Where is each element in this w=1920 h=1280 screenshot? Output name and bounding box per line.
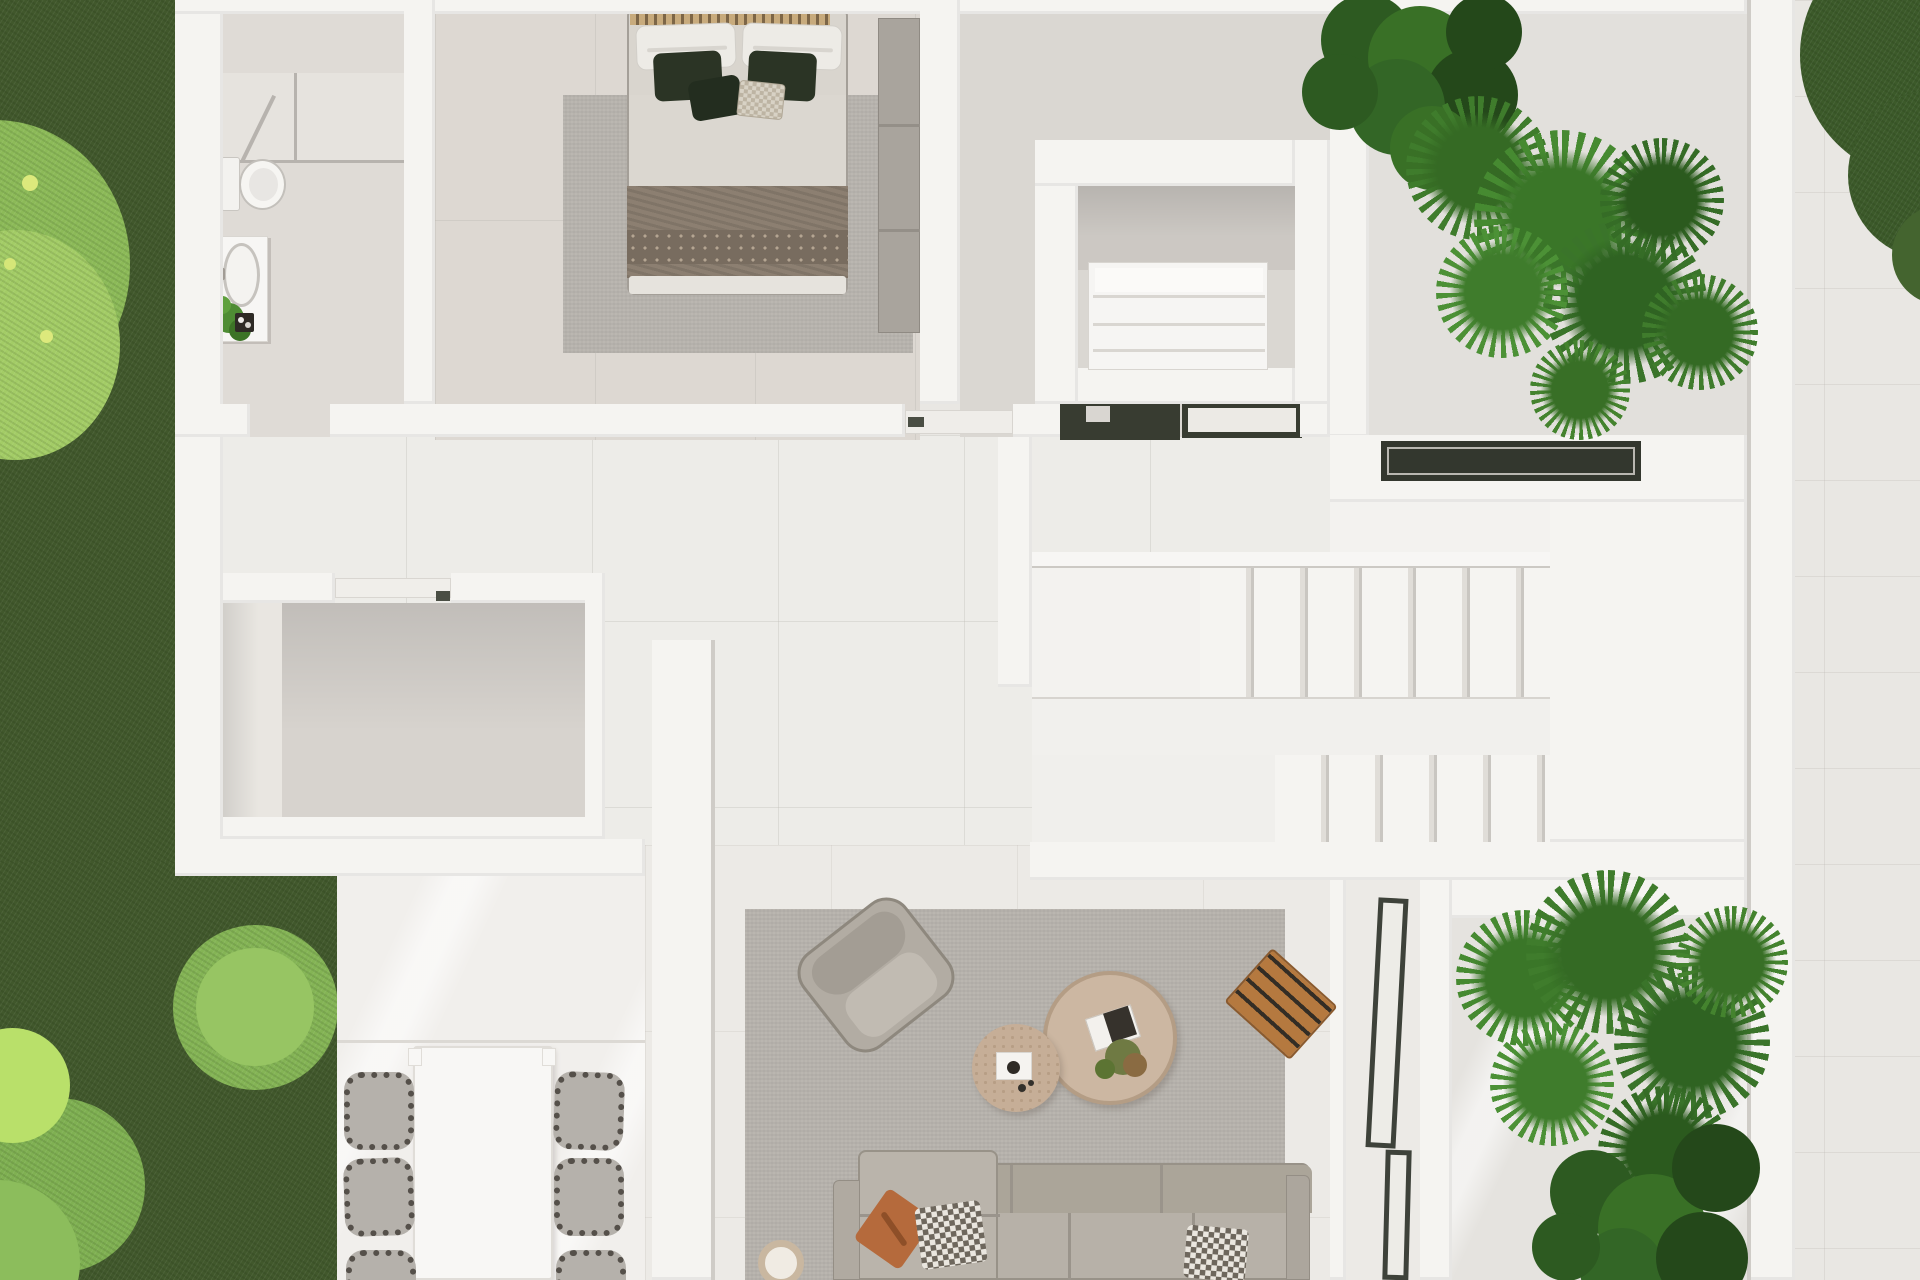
dresser-line-a xyxy=(1093,295,1265,298)
sofa-back-seam-a xyxy=(1010,1165,1013,1213)
wall-south-a xyxy=(175,404,250,437)
stairs-lower-left-floor xyxy=(1032,755,1275,842)
table-sprig-c xyxy=(1095,1059,1115,1079)
shower-glass-line xyxy=(294,73,297,163)
table-dot-a xyxy=(1018,1084,1026,1092)
wall-south-west xyxy=(175,839,645,876)
table-leg-nub-left xyxy=(408,1048,422,1066)
pillow-fold-line xyxy=(880,1211,908,1247)
dining-chair-left-1 xyxy=(344,1072,414,1150)
closet-nook-back-shadow xyxy=(1078,186,1295,270)
utility-door-leaf xyxy=(335,578,451,598)
dining-chair-right-3 xyxy=(556,1250,626,1280)
wall-utility-left-face xyxy=(223,603,282,817)
window-inner-frame xyxy=(1387,447,1635,475)
closet-nook-wall-bottom xyxy=(1078,368,1295,404)
bed-throw-pattern-band xyxy=(627,230,848,264)
dresser-line-c xyxy=(1093,349,1265,352)
coffee-table-small xyxy=(972,1024,1060,1112)
table-dot-b xyxy=(1028,1080,1034,1086)
fig-plant-top-leaf-e xyxy=(1302,54,1378,130)
wall-bathroom-bedroom xyxy=(404,0,435,404)
stairs-lower-flight xyxy=(1275,755,1550,842)
fig-plant-bottom-leaf-c xyxy=(1672,1124,1760,1212)
dresser-line-b xyxy=(1093,323,1265,326)
wall-bedroom-closet xyxy=(920,0,960,404)
wall-utility-right xyxy=(585,573,605,837)
patio-step-line xyxy=(337,1040,645,1043)
wall-utility-top-b xyxy=(451,573,605,603)
tray-dot xyxy=(1007,1061,1020,1074)
closet-nook-wall-right xyxy=(1295,140,1330,404)
table-tray xyxy=(996,1052,1032,1080)
closet-dresser xyxy=(1088,262,1268,370)
vanity-soap-tray xyxy=(235,313,254,332)
bedroom-door-leaf xyxy=(905,410,1013,434)
dining-chair-right-2 xyxy=(554,1158,624,1236)
stairs-mid-landing xyxy=(1032,697,1550,755)
bush-flower-speck-a xyxy=(22,175,38,191)
sofa-pillow-checker-a xyxy=(914,1200,988,1271)
soap-dot-a xyxy=(238,317,244,323)
wall-edge-shadow xyxy=(711,640,715,1280)
sliding-door-glass xyxy=(1182,402,1302,438)
sofa-arm-left xyxy=(833,1180,860,1280)
wall-south-d xyxy=(1300,404,1330,437)
side-table-round xyxy=(758,1240,804,1280)
dining-chair-right-1 xyxy=(553,1071,626,1151)
wall-corridor-strip xyxy=(1330,880,1346,1280)
sliding-door-notch xyxy=(1086,406,1110,422)
stairs-rail xyxy=(1032,552,1550,566)
wall-south-c xyxy=(1013,404,1063,437)
sofa-pillow-checker-b xyxy=(1183,1224,1249,1280)
door-hinge-mark xyxy=(436,591,450,601)
table-leg-nub-right xyxy=(542,1048,556,1066)
glass-door-lower xyxy=(1382,1150,1411,1280)
bed-cushion-patterned xyxy=(736,80,786,121)
stairs-upper-flight xyxy=(1200,566,1550,697)
sofa-arm-right xyxy=(1286,1175,1310,1280)
wall-stairs-block xyxy=(1550,502,1747,842)
sofa-back-seam-b xyxy=(1160,1165,1163,1213)
window-dark-slab xyxy=(1381,441,1641,481)
palm-plant-top-g xyxy=(1530,340,1630,440)
toilet-bowl xyxy=(239,159,286,210)
bush-flower-speck-c xyxy=(40,330,53,343)
closet-nook-wall-top xyxy=(1035,140,1295,186)
palm-plant-top-f xyxy=(1642,274,1758,390)
bush-flower-speck-b xyxy=(4,258,16,270)
sliding-door-dark xyxy=(1060,398,1180,440)
floor-plan-render xyxy=(0,0,1920,1280)
palm-plant-bottom-d xyxy=(1490,1022,1614,1146)
wall-patio-living xyxy=(652,640,715,1280)
dining-table xyxy=(413,1046,553,1280)
soap-dot-b xyxy=(245,322,251,328)
wall-stairs-left xyxy=(998,437,1032,687)
palm-plant-bottom-f xyxy=(1676,906,1788,1018)
vanity-sink xyxy=(223,243,260,307)
bush-mid-left-inner xyxy=(196,948,314,1066)
toilet-bowl-inner xyxy=(249,168,278,201)
toilet-tank xyxy=(221,157,240,211)
wall-courtyard-bottom-left xyxy=(1420,880,1452,1280)
dining-chair-left-3 xyxy=(346,1250,416,1280)
door-hinge-mark xyxy=(908,417,924,427)
dining-chair-left-2 xyxy=(343,1157,416,1237)
fig-plant-bottom-leaf-e xyxy=(1532,1213,1600,1280)
sofa-seat-seam-a xyxy=(1068,1213,1071,1280)
wardrobe-line-a xyxy=(879,124,921,127)
utility-room-floor xyxy=(282,603,585,817)
wardrobe xyxy=(878,18,920,333)
table-sprig-b xyxy=(1123,1053,1147,1077)
stairs-landing-left xyxy=(1032,552,1200,697)
palm-plant-top-e xyxy=(1600,138,1724,262)
bed-sheet-fold xyxy=(629,276,846,294)
coffee-table-large xyxy=(1043,971,1177,1105)
sliding-door-stub xyxy=(1130,432,1170,440)
wall-south-b xyxy=(330,404,905,437)
wall-utility-bottom xyxy=(223,817,605,839)
stairs-top-landing xyxy=(1330,502,1550,554)
palm-plant-top-d xyxy=(1436,226,1568,358)
wall-utility-top-a xyxy=(223,573,335,603)
wardrobe-line-b xyxy=(879,229,921,232)
dresser-top-drawer xyxy=(1095,268,1263,292)
wall-below-stairs xyxy=(1030,842,1747,880)
